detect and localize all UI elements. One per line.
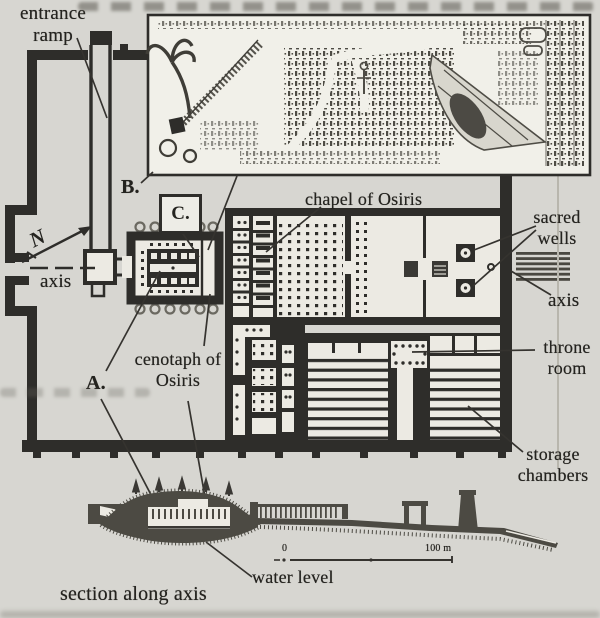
scale-start: 0 xyxy=(282,543,287,555)
section-drawing xyxy=(88,477,558,550)
east-entrance-landing xyxy=(516,252,570,281)
label-throne-room: throne room xyxy=(536,337,598,378)
label-axis-east: axis xyxy=(548,290,579,312)
label-axis-west: axis xyxy=(40,271,71,293)
label-storage-chambers: storage chambers xyxy=(506,444,600,485)
temple-plan xyxy=(225,208,512,325)
label-section-along-axis: section along axis xyxy=(60,583,207,606)
water-level-line xyxy=(148,526,230,529)
marker-c-box: C. xyxy=(159,194,202,234)
marker-b: B. xyxy=(121,176,140,199)
marker-a: A. xyxy=(86,372,106,395)
cenotaph-of-osiris-plan xyxy=(122,223,219,314)
throne-room xyxy=(391,341,427,368)
label-chapel-of-osiris: chapel of Osiris xyxy=(305,189,422,210)
label-sacred-wells: sacred wells xyxy=(521,207,593,248)
label-entrance-ramp: entrance ramp xyxy=(2,3,104,47)
site-plan-svg xyxy=(0,0,600,618)
scale-bar xyxy=(274,556,452,563)
temple-west-annex xyxy=(225,317,305,440)
scanned-figure-page: entrance ramp B. C. N axis chapel of Osi… xyxy=(0,0,600,618)
label-water-level: water level xyxy=(252,567,334,588)
storage-wing-plan xyxy=(300,325,512,452)
inset-papyrus-plan xyxy=(147,15,590,175)
label-cenotaph-of-osiris: cenotaph of Osiris xyxy=(126,349,230,390)
scale-end: 100 m xyxy=(425,543,451,555)
